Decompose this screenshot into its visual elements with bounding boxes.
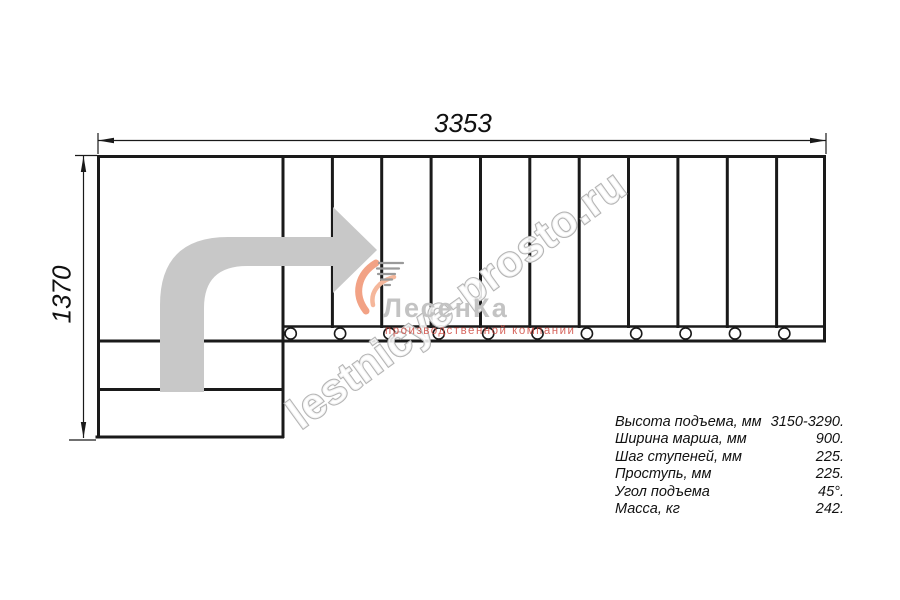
spec-row-height: Высота подъема, мм 3150-3290.: [615, 414, 844, 431]
spec-table: Высота подъема, мм 3150-3290. Ширина мар…: [615, 414, 844, 518]
spec-row-width: Ширина марша, мм 900.: [615, 431, 844, 448]
spec-value: 242.: [816, 501, 844, 518]
spec-row-tread: Проступь, мм 225.: [615, 466, 844, 483]
spec-row-mass: Масса, кг 242.: [615, 501, 844, 518]
dim-height-label: 1370: [46, 266, 77, 324]
spec-label: Проступь, мм: [615, 466, 711, 483]
logo-company-name: ЛесенКа: [383, 293, 509, 324]
spec-label: Шаг ступеней, мм: [615, 449, 742, 466]
spec-label: Ширина марша, мм: [615, 431, 747, 448]
spec-value: 3150-3290.: [771, 414, 844, 431]
spec-label: Высота подъема, мм: [615, 414, 762, 431]
stair-plan-drawing: lestnicye-prosto.ru 3353 1370 ЛесенКа пр…: [0, 0, 900, 600]
logo-tagline: производственной компании: [385, 325, 575, 337]
spec-label: Масса, кг: [615, 501, 680, 518]
spec-row-step: Шаг ступеней, мм 225.: [615, 449, 844, 466]
spec-value: 45°.: [818, 484, 844, 501]
dim-width-label: 3353: [434, 108, 492, 139]
spec-row-angle: Угол подъема 45°.: [615, 484, 844, 501]
spec-value: 225.: [816, 449, 844, 466]
spec-value: 900.: [816, 431, 844, 448]
spec-label: Угол подъема: [615, 484, 710, 501]
spec-value: 225.: [816, 466, 844, 483]
